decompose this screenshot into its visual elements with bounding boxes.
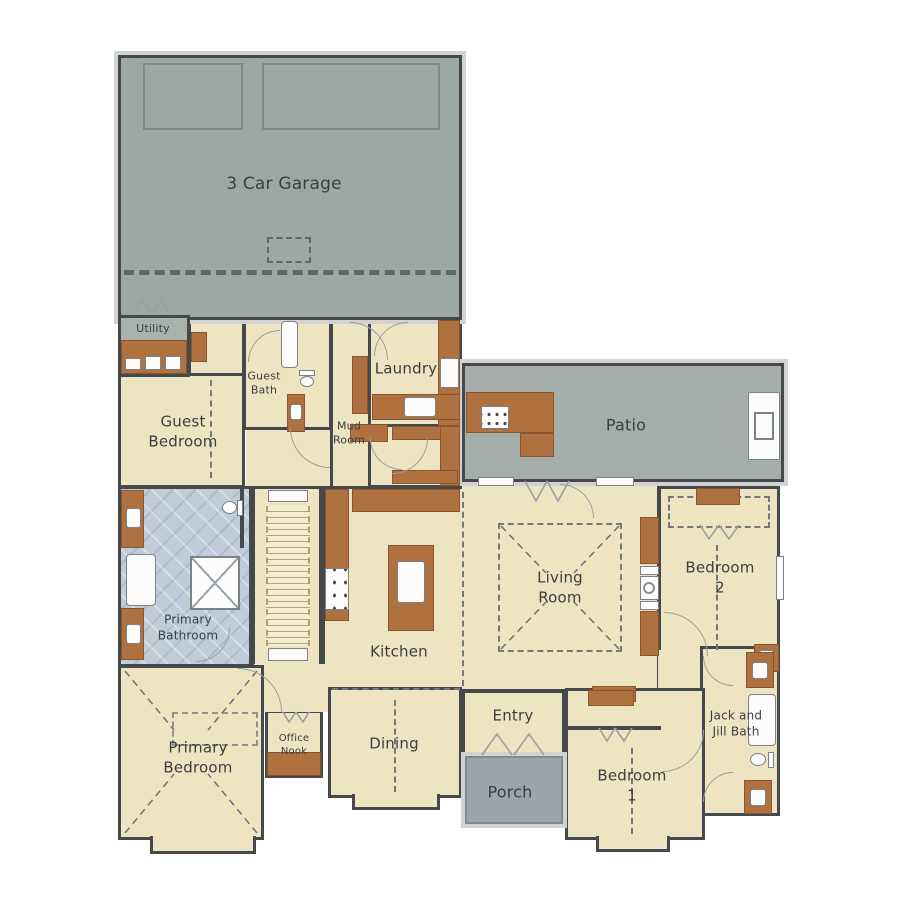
label-kitchen: Kitchen xyxy=(370,642,428,662)
label-primary-bedroom: Primary Bedroom xyxy=(163,739,232,778)
utility-appliance-2 xyxy=(145,356,161,370)
living-shelf-top xyxy=(640,566,659,575)
primary-toilet-bowl xyxy=(222,501,237,514)
garage-bay-1 xyxy=(143,63,243,130)
kitchen-dining-divider xyxy=(332,688,460,690)
label-porch: Porch xyxy=(487,783,532,804)
living-shelf-bottom xyxy=(640,601,659,610)
office-window-icon xyxy=(282,711,310,724)
living-fireplace-icon xyxy=(643,582,655,594)
mud-room-lockers xyxy=(352,356,368,414)
bedroom1-dresser xyxy=(588,690,634,706)
bedroom2-french-door-icon xyxy=(699,524,741,541)
guest-closet-dresser xyxy=(191,332,207,362)
bay-window-bedroom-1 xyxy=(596,836,670,852)
label-patio: Patio xyxy=(606,416,646,437)
label-guest-bedroom: Guest Bedroom xyxy=(148,413,217,452)
label-living-room: Living Room xyxy=(537,569,583,608)
label-bedroom-2: Bedroom 2 xyxy=(685,559,754,598)
bedroom2-bench xyxy=(696,488,740,505)
living-builtin-top xyxy=(640,517,659,564)
bedroom1-closet-door-icon xyxy=(598,727,634,743)
garage-door-line xyxy=(124,270,456,275)
guest-bath-sink xyxy=(290,404,302,420)
kitchen-living-divider xyxy=(462,492,464,686)
label-entry: Entry xyxy=(493,706,534,726)
bay-window-dining xyxy=(352,794,440,810)
jj-toilet-bowl xyxy=(750,753,766,766)
primary-sink-top xyxy=(126,508,141,528)
guest-bathtub xyxy=(281,321,298,368)
laundry-sink xyxy=(404,397,436,417)
label-bedroom-1: Bedroom 1 xyxy=(597,767,666,806)
label-jack-jill-bath: Jack and Jill Bath xyxy=(710,708,762,739)
label-dining: Dining xyxy=(369,734,419,754)
closet-shelf-bottom xyxy=(268,648,308,661)
laundry-washer xyxy=(440,358,459,388)
label-primary-bathroom: Primary Bathroom xyxy=(158,612,219,643)
bedroom2-window-right xyxy=(776,556,784,600)
kitchen-range xyxy=(325,568,349,610)
label-guest-bath: Guest Bath xyxy=(247,370,280,399)
living-patio-window-left xyxy=(478,477,514,486)
label-office-nook: Office Nook xyxy=(279,732,310,758)
primary-shower xyxy=(190,556,240,610)
outdoor-kitchen-counter xyxy=(466,392,554,433)
jj-toilet-tank xyxy=(768,752,774,768)
kitchen-top-counter xyxy=(352,489,460,512)
entry-double-door-icon xyxy=(481,732,545,757)
utility-appliance-1 xyxy=(125,358,141,370)
primary-sink-bottom xyxy=(126,624,141,644)
jj-sink-bottom xyxy=(750,789,766,806)
jj-sink-top xyxy=(752,662,768,679)
patio-firebox xyxy=(754,412,774,440)
bay-window-primary-bedroom xyxy=(150,836,256,854)
label-utility: Utility xyxy=(136,322,170,336)
guest-toilet-bowl xyxy=(300,376,314,387)
kitchen-island-sink xyxy=(397,561,425,603)
toilet-room-wall xyxy=(240,486,244,548)
outdoor-grill xyxy=(481,406,509,429)
label-laundry: Laundry xyxy=(375,359,438,379)
garage-bay-2 xyxy=(262,63,440,130)
label-mud-room: Mud Room xyxy=(333,420,365,449)
utility-bifold-door-icon xyxy=(132,298,172,315)
garage-post xyxy=(267,237,311,263)
floor-plan: 3 Car Garage Utility Guest Bedroom Guest… xyxy=(0,0,901,901)
primary-toilet-tank xyxy=(237,500,243,516)
closet-hanging-rods xyxy=(266,506,310,646)
living-builtin-bottom xyxy=(640,611,659,656)
primary-bathtub xyxy=(126,554,156,606)
utility-appliance-3 xyxy=(165,356,181,370)
living-patio-window-right xyxy=(596,477,634,486)
label-garage: 3 Car Garage xyxy=(226,173,342,195)
closet-shelf-top xyxy=(268,490,308,502)
outdoor-kitchen-return xyxy=(520,433,554,457)
